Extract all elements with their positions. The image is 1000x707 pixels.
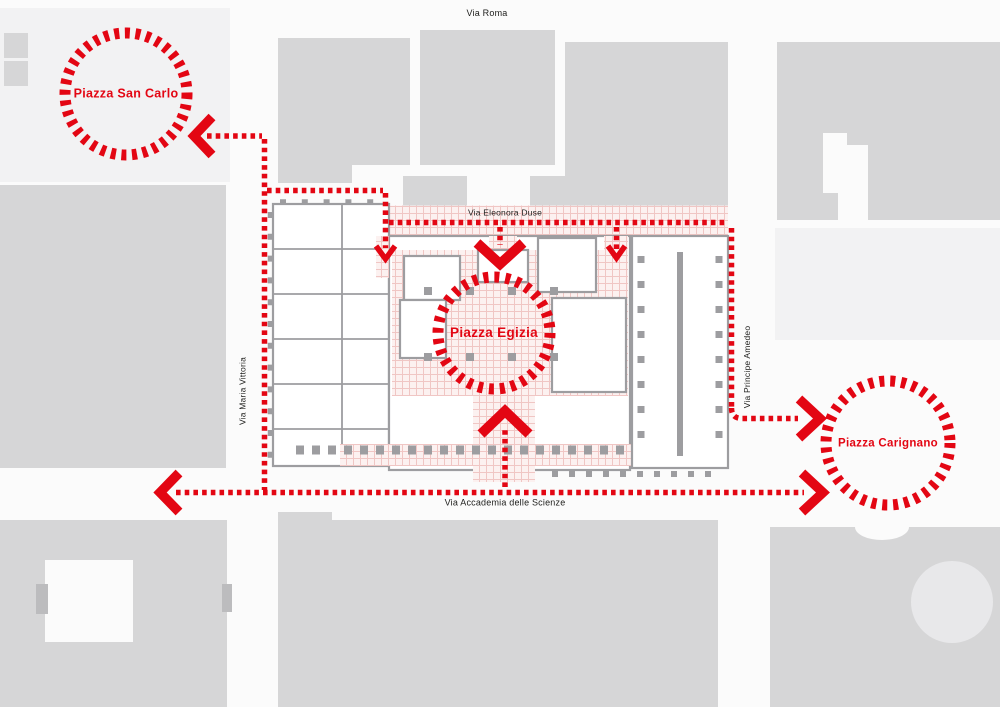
map-canvas: Via Roma Via Eleonora Duse Via Maria Vit… <box>0 0 1000 707</box>
museum-room <box>552 298 626 392</box>
flow-path-to-carignano-upper <box>732 408 799 419</box>
city-block-top-a-ext <box>278 165 352 183</box>
street-label-via-maria-vittoria: Via Maria Vittoria <box>238 357 248 425</box>
museum-room <box>538 238 596 292</box>
arrow-right-carignano-upper <box>799 399 820 438</box>
block-detail <box>36 584 48 614</box>
arrow-right-carignano-lower <box>802 473 823 512</box>
city-block-top-b <box>420 30 555 165</box>
city-block <box>4 61 28 86</box>
circulation-map: Via Roma Via Eleonora Duse Via Maria Vit… <box>0 0 1000 707</box>
piazza-label-san-carlo: Piazza San Carlo <box>74 87 179 101</box>
city-block <box>530 176 570 208</box>
piazza-label-carignano: Piazza Carignano <box>838 438 938 450</box>
paving-via-eleonora-duse <box>376 206 728 237</box>
left-wing <box>273 204 389 466</box>
block-detail <box>222 584 232 612</box>
block-notch <box>855 514 909 540</box>
city-block-top-c <box>565 42 728 208</box>
block-courtyard-cut <box>838 145 868 220</box>
light-panel-right <box>775 228 1000 340</box>
city-block <box>4 33 28 58</box>
city-block-bottom-mid <box>278 520 718 707</box>
street-label-via-eleonora-duse: Via Eleonora Duse <box>468 208 542 218</box>
palazzo-rotunda <box>911 561 993 643</box>
street-label-via-principe-amedeo: Via Principe Amedeo <box>742 326 752 409</box>
city-block-top-right <box>777 42 1000 220</box>
street-label-via-roma: Via Roma <box>467 8 508 18</box>
piazza-label-egizia: Piazza Egizia <box>450 325 538 340</box>
city-block <box>403 176 467 208</box>
street-label-via-accademia: Via Accademia delle Scienze <box>445 498 566 508</box>
museum-building-plan <box>270 202 728 483</box>
city-block-top-a <box>278 38 410 165</box>
block-courtyard-cut <box>45 560 133 642</box>
city-block-left <box>0 185 226 468</box>
